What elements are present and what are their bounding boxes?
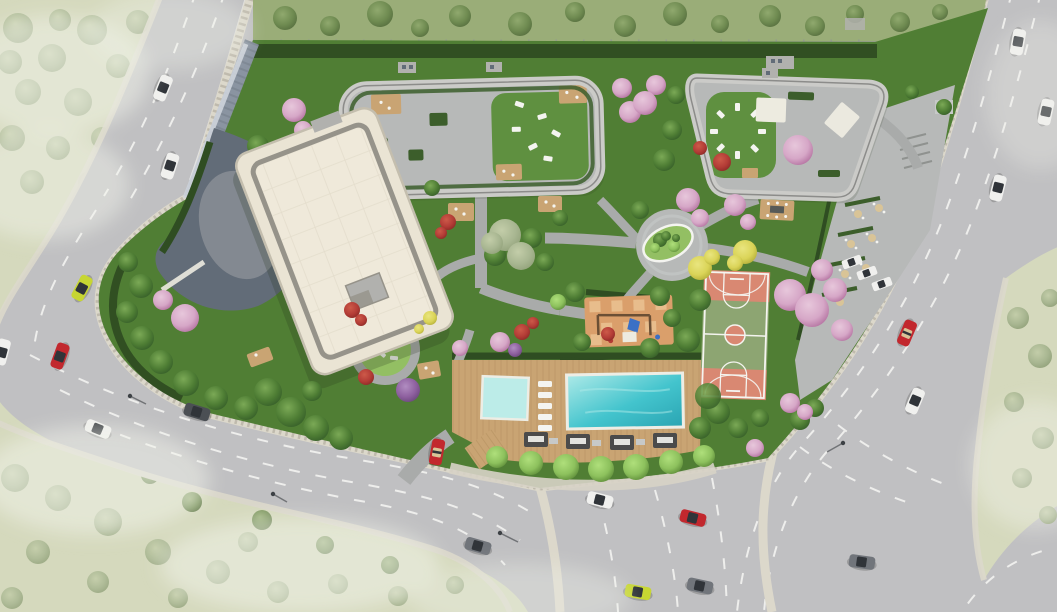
site-aerial-render	[0, 0, 1057, 612]
kids-pool	[481, 376, 528, 420]
dining-deck	[759, 199, 794, 221]
upper-field-strip	[253, 0, 986, 42]
terrace-seating	[742, 168, 758, 178]
play-canopy	[622, 332, 636, 342]
pavilion	[756, 97, 787, 122]
boundary-hedge	[253, 44, 877, 58]
basketball-court	[700, 270, 770, 400]
render-canvas	[0, 0, 1057, 612]
swimming-pool	[567, 373, 684, 429]
